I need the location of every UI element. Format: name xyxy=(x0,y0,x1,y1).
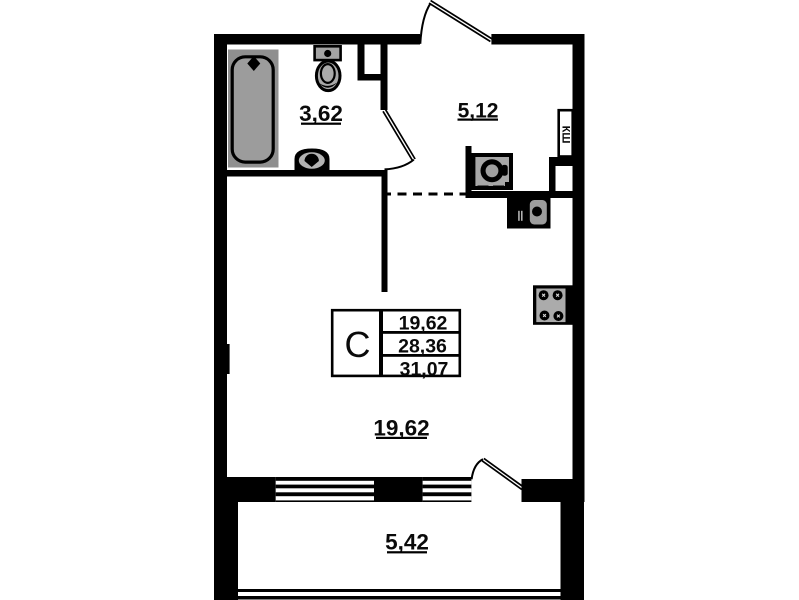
svg-text:5,42: 5,42 xyxy=(385,530,429,555)
svg-text:КШ: КШ xyxy=(559,126,571,144)
svg-text:3,62: 3,62 xyxy=(299,101,343,126)
svg-text:С: С xyxy=(345,324,371,365)
svg-text:19,62: 19,62 xyxy=(399,312,448,334)
svg-text:31,07: 31,07 xyxy=(400,359,449,381)
svg-text:28,36: 28,36 xyxy=(398,335,447,357)
svg-text:19,62: 19,62 xyxy=(373,415,429,440)
